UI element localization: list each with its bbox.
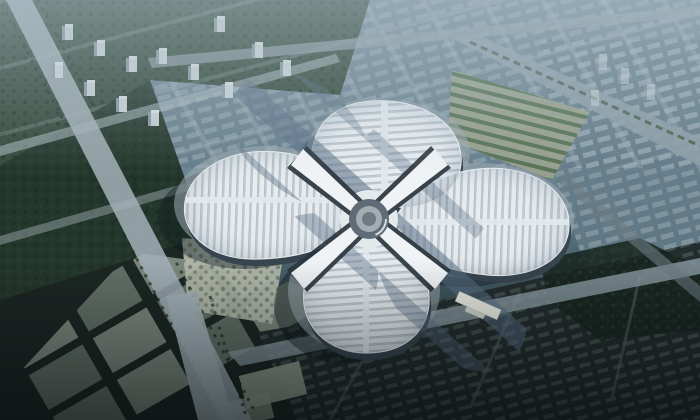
bottom-vignette	[0, 0, 700, 420]
aerial-rendering-svg	[0, 0, 700, 420]
screenshot-root	[0, 0, 700, 420]
